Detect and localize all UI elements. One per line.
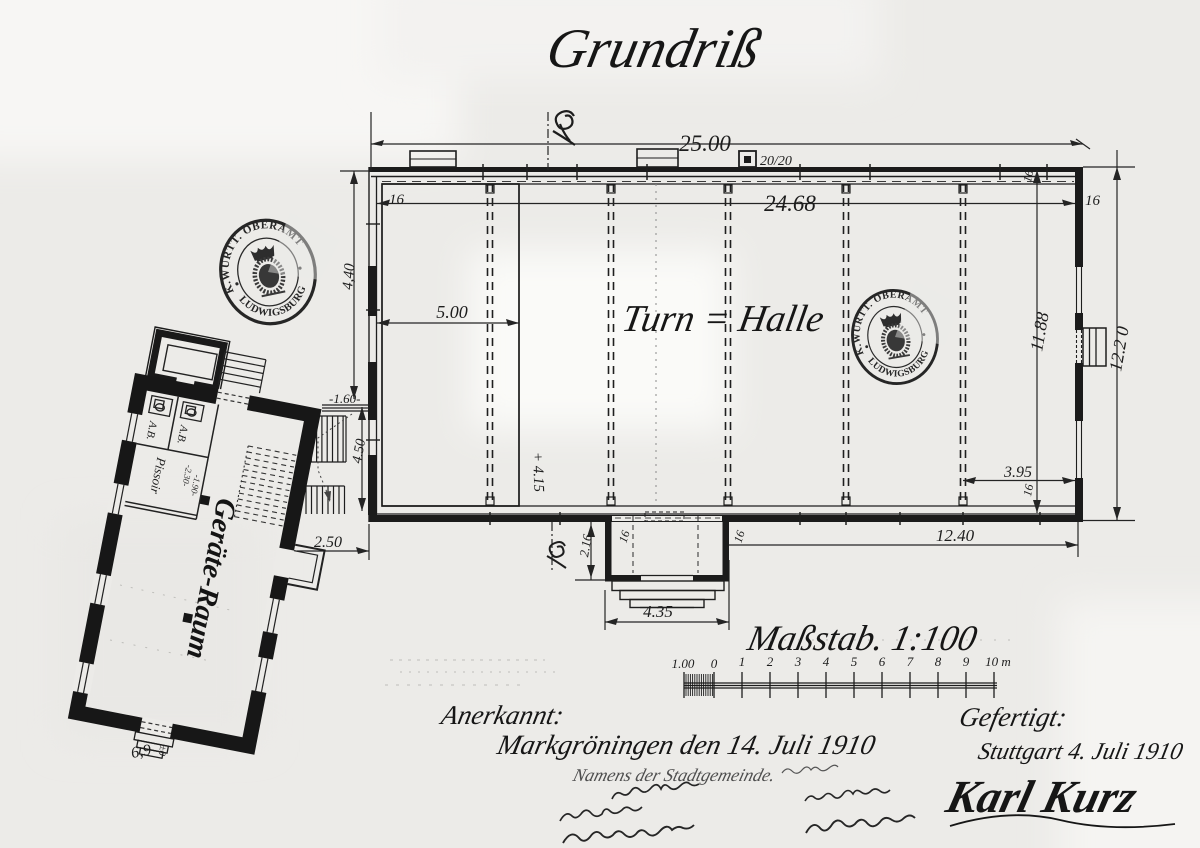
svg-text:-1.60-: -1.60- <box>329 391 360 406</box>
svg-text:10 m: 10 m <box>985 654 1011 669</box>
svg-text:16: 16 <box>389 192 405 208</box>
svg-text:6: 6 <box>879 654 886 669</box>
svg-text:12.40: 12.40 <box>936 526 975 545</box>
svg-text:3.95: 3.95 <box>1003 464 1032 481</box>
svg-text:5: 5 <box>851 654 858 669</box>
svg-text:5.00: 5.00 <box>436 302 468 322</box>
svg-text:4: 4 <box>823 654 830 669</box>
svg-text:8: 8 <box>935 654 942 669</box>
svg-text:16: 16 <box>1085 193 1101 209</box>
svg-text:7: 7 <box>907 654 914 669</box>
svg-text:Karl Kurz: Karl Kurz <box>940 772 1142 823</box>
svg-text:4.35: 4.35 <box>643 602 673 621</box>
svg-text:4,40: 4,40 <box>340 262 358 290</box>
svg-text:Namens der Stadtgemeinde.: Namens der Stadtgemeinde. <box>570 765 778 785</box>
svg-text:Anerkannt:: Anerkannt: <box>437 700 567 730</box>
svg-text:Stuttgart 4. Juli 1910: Stuttgart 4. Juli 1910 <box>976 738 1186 765</box>
svg-text:25.00: 25.00 <box>679 131 731 156</box>
svg-text:1: 1 <box>739 654 746 669</box>
svg-text:+ 4.15: + 4.15 <box>529 452 546 493</box>
svg-text:20/20: 20/20 <box>760 154 792 169</box>
svg-text:6,9: 6,9 <box>130 742 153 762</box>
svg-text:24.68: 24.68 <box>764 191 816 216</box>
svg-text:2: 2 <box>767 654 774 669</box>
svg-text:Maßstab. 1:100: Maßstab. 1:100 <box>743 618 980 658</box>
svg-text:Gefertigt:: Gefertigt: <box>957 702 1070 732</box>
svg-text:±0: ±0 <box>156 744 169 756</box>
svg-text:9: 9 <box>963 654 970 669</box>
svg-text:Turn = Halle: Turn = Halle <box>619 298 827 340</box>
svg-text:Markgröningen den 14. Juli 191: Markgröningen den 14. Juli 1910 <box>494 730 878 761</box>
svg-text:0: 0 <box>711 656 718 671</box>
svg-text:1.00: 1.00 <box>672 656 695 671</box>
svg-text:Grundriß: Grundriß <box>542 19 767 80</box>
svg-text:3: 3 <box>794 654 802 669</box>
